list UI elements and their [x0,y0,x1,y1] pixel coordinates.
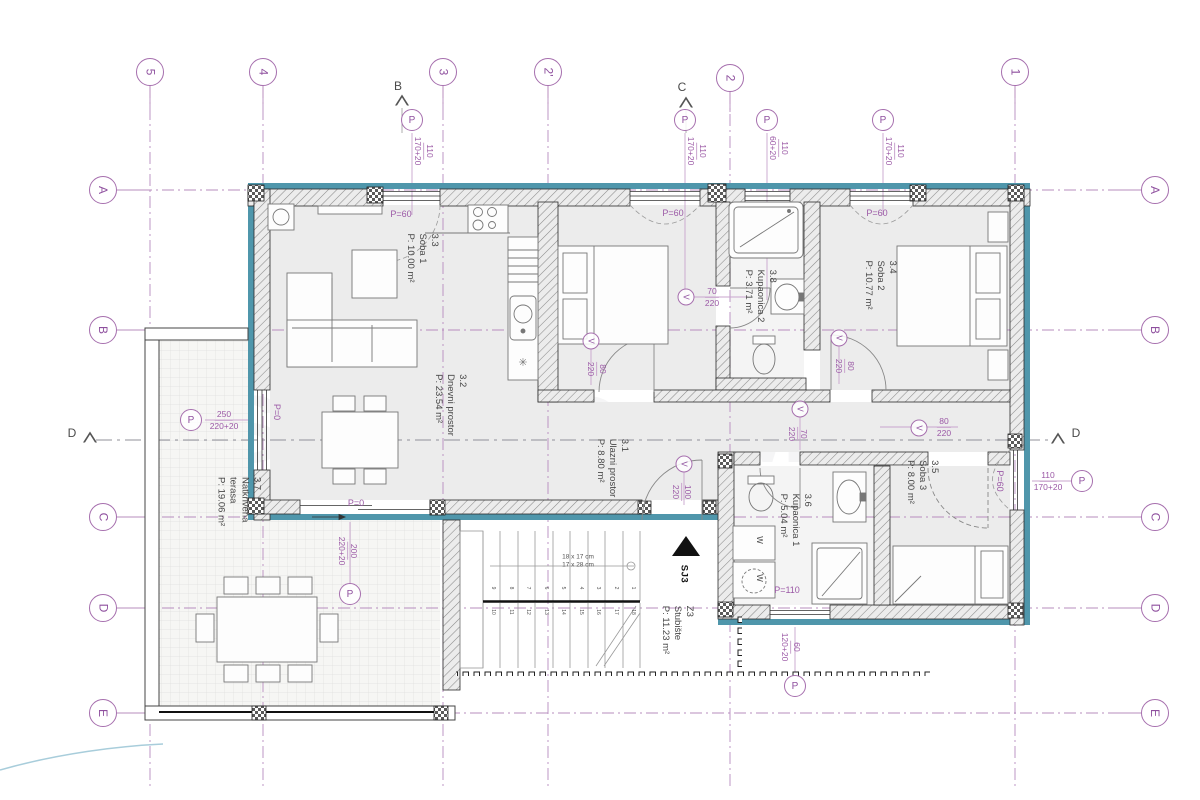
door-dim-kupaonica2: 70220 [705,286,719,308]
stair-dimension-note: 18 x 17 cm17 x 28 cm [562,554,594,571]
room-label-kupaonica1: 3.6Kupaonica 1P: 5.04 m² [777,494,813,547]
svg-text:1: 1 [630,587,636,590]
door-dim-soba3: 80220 [937,416,951,438]
door-dim-soba1: 80220 [586,362,608,376]
window-symbol-right-soba3: P [1071,470,1093,492]
site-boundary-line [0,744,163,770]
kitchen-symbol-icon: ✳ [518,357,527,369]
window-dim-terrace-door: 200220+20 [337,537,359,566]
room-label-stubiste: Z3StubišteP: 11.23 m² [659,606,695,654]
bed-soba1 [558,246,668,344]
grid-row-e-right: E [1141,699,1169,727]
grid-row-e-left: E [89,699,117,727]
bed-soba3 [893,546,1008,604]
grid-row-c-right: C [1141,503,1169,531]
window-symbol-bottom-kupaonica1: P [784,675,806,697]
parapet-soba2: P=60 [866,208,887,218]
grid-col-3: 3 [429,58,457,86]
washer-label: W [755,536,764,544]
door-symbol-soba1: V [583,333,600,350]
grid-col-2p: 2' [534,58,562,86]
svg-text:16: 16 [595,609,601,615]
svg-text:6: 6 [543,587,549,590]
parapet-kupaonica1: P=110 [774,585,800,595]
grid-row-c-left: C [89,503,117,531]
window-symbol-top-soba2: P [872,109,894,131]
svg-text:4: 4 [578,587,584,590]
svg-text:2: 2 [613,587,619,590]
window-symbol-left-living: P [180,409,202,431]
room-label-soba1: 3.3Soba 1P: 10.00 m² [404,233,440,282]
svg-text:11: 11 [508,609,514,614]
facade-triangle-c-icon [679,97,693,108]
window-dim-left-living: 250220+20 [210,409,239,431]
window-symbol-top-kupaonica2: P [756,109,778,131]
grid-row-d-right: D [1141,594,1169,622]
parapet-living-side: P=0 [272,404,282,420]
room-label-dnevni: 3.2Dnevni prostorP: 23.54 m² [432,374,468,436]
svg-text:5: 5 [560,587,566,590]
window-dim-top-living: 110170+20 [413,137,435,166]
svg-text:7: 7 [525,587,531,590]
grid-row-d-left: D [89,594,117,622]
floor-plan-page: SIMIĆDOM AV [0,0,1200,800]
door-symbol-kupaonica2: V [678,289,695,306]
dotted-projection-line [456,668,930,676]
door-dim-soba2: 80220 [834,359,856,373]
window-dim-top-kupaonica2: 11060+20 [768,136,790,160]
door-symbol-kupaonica1: V [792,401,809,418]
facade-marker-c: C [678,80,687,94]
grid-col-1: 1 [1001,58,1029,86]
window-dim-right-soba3: 110170+20 [1034,470,1063,492]
window-symbol-top-living: P [401,109,423,131]
room-label-ulazni: 3.1Ulazni prostorP: 8.80 m² [594,439,630,498]
section-triangle-right-icon [1051,433,1065,444]
entry-label-sj3: SJ3 [679,565,690,583]
grid-col-4: 4 [249,58,277,86]
svg-text:14: 14 [560,609,566,615]
door-symbol-soba3: V [911,420,928,437]
svg-text:13: 13 [543,609,549,615]
window-dim-top-soba1: 110170+20 [686,137,708,166]
room-label-soba2: 3.4Soba 2P: 10.77 m² [862,260,898,309]
window-dim-bottom-kupaonica1: 60120+20 [780,633,802,662]
facade-triangle-b-icon [395,95,409,106]
parapet-soba3: P=60 [995,470,1005,491]
section-triangle-left-icon [83,432,97,443]
svg-text:18: 18 [630,609,636,615]
section-label-left: D [68,426,77,440]
parapet-kitchen: P=60 [390,209,411,219]
svg-text:17: 17 [613,609,619,615]
svg-text:3: 3 [595,587,601,590]
grid-row-b-left: B [89,316,117,344]
door-symbol-soba2: V [831,330,848,347]
facade-marker-lines [402,108,686,133]
door-dim-kupaonica1: 70220 [787,427,809,441]
room-label-kupaonica2: 3.8Kupaonica 2P: 3.71 m² [742,270,778,323]
parapet-terrace-door: P=0 [348,498,364,508]
section-label-right: D [1072,426,1081,440]
dryer-label: W [755,574,764,582]
window-symbol-top-soba1: P [674,109,696,131]
room-label-soba3: 3.5Soba 3P: 8.00 m² [904,460,940,504]
grid-col-2: 2 [716,64,744,92]
parapet-soba1: P=60 [662,208,683,218]
door-dim-entrance: 100220 [671,483,693,501]
svg-text:10: 10 [490,609,496,615]
door-symbol-entrance: V [676,456,693,473]
grid-row-b-right: B [1141,316,1169,344]
grid-col-5: 5 [136,58,164,86]
grid-row-a-right: A [1141,176,1169,204]
grid-row-a-left: A [89,176,117,204]
svg-text:15: 15 [578,609,584,615]
facade-marker-b: B [394,79,402,93]
floor-plan-drawing: ✳ [0,0,1200,800]
svg-text:8: 8 [508,587,514,590]
dotted-projection-line-vertical [734,615,742,668]
room-label-terasa: 3.7Natkrivena terasaP: 19.06 m² [214,477,263,533]
svg-text:12: 12 [525,609,531,615]
window-symbol-terrace-door: P [339,583,361,605]
window-dim-top-soba2: 110170+20 [884,137,906,166]
svg-text:9: 9 [490,587,496,590]
